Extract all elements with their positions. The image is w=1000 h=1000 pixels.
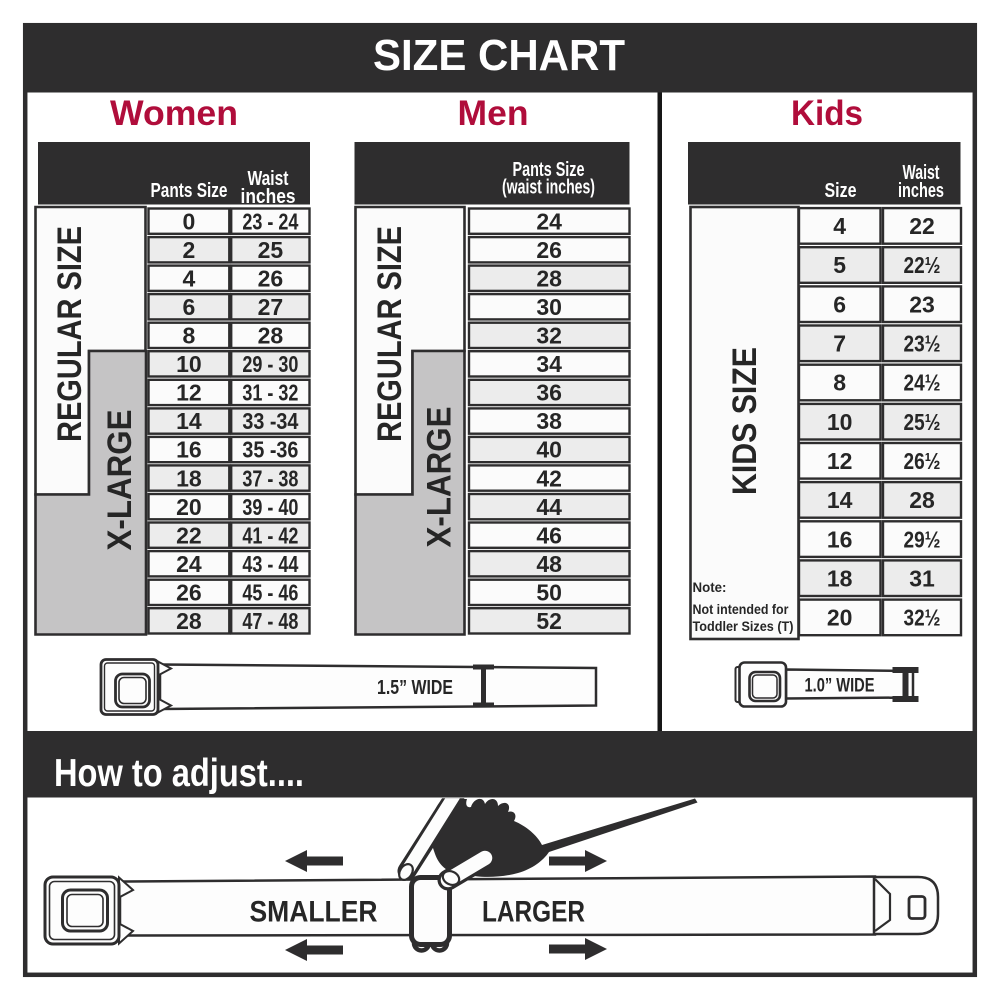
svg-text:SIZE CHART: SIZE CHART xyxy=(373,31,625,80)
svg-text:32½: 32½ xyxy=(904,605,941,631)
svg-text:40: 40 xyxy=(536,437,562,463)
svg-text:SMALLER: SMALLER xyxy=(250,896,378,929)
svg-text:How to adjust....: How to adjust.... xyxy=(54,752,304,795)
svg-text:12: 12 xyxy=(176,380,202,406)
svg-text:X-LARGE: X-LARGE xyxy=(101,410,139,551)
svg-text:36: 36 xyxy=(536,380,562,406)
svg-text:28: 28 xyxy=(258,323,284,349)
svg-text:Men: Men xyxy=(458,94,529,133)
svg-text:1.5” WIDE: 1.5” WIDE xyxy=(377,677,453,699)
svg-text:4: 4 xyxy=(833,213,846,239)
svg-text:28: 28 xyxy=(176,608,202,634)
svg-text:25½: 25½ xyxy=(904,409,941,435)
svg-text:52: 52 xyxy=(536,608,562,634)
svg-text:45 - 46: 45 - 46 xyxy=(242,580,298,606)
svg-text:8: 8 xyxy=(183,323,196,349)
svg-text:48: 48 xyxy=(536,551,562,577)
svg-text:39 - 40: 39 - 40 xyxy=(242,494,298,520)
svg-text:24½: 24½ xyxy=(904,370,941,396)
svg-text:7: 7 xyxy=(833,331,846,357)
svg-text:28: 28 xyxy=(536,265,562,291)
svg-text:REGULAR SIZE: REGULAR SIZE xyxy=(51,226,89,442)
svg-text:38: 38 xyxy=(536,408,562,434)
svg-text:22: 22 xyxy=(176,522,202,548)
svg-text:Toddler Sizes (T): Toddler Sizes (T) xyxy=(693,618,794,634)
svg-text:23½: 23½ xyxy=(904,331,941,357)
svg-text:24: 24 xyxy=(176,551,202,577)
svg-text:28: 28 xyxy=(909,487,935,513)
svg-text:12: 12 xyxy=(827,448,853,474)
svg-text:42: 42 xyxy=(536,465,562,491)
svg-text:20: 20 xyxy=(176,494,202,520)
svg-text:30: 30 xyxy=(536,294,562,320)
svg-text:25: 25 xyxy=(258,237,284,263)
svg-text:16: 16 xyxy=(827,526,853,552)
svg-text:33 -34: 33 -34 xyxy=(242,408,298,434)
svg-text:Note:: Note: xyxy=(693,579,727,595)
svg-text:26½: 26½ xyxy=(904,448,941,474)
svg-text:6: 6 xyxy=(183,294,196,320)
svg-text:43 - 44: 43 - 44 xyxy=(242,551,298,577)
svg-text:20: 20 xyxy=(827,605,853,631)
svg-text:16: 16 xyxy=(176,437,202,463)
svg-text:2: 2 xyxy=(183,237,196,263)
svg-text:27: 27 xyxy=(258,294,284,320)
svg-text:Pants Size: Pants Size xyxy=(151,180,228,202)
svg-text:4: 4 xyxy=(183,265,196,291)
svg-text:REGULAR SIZE: REGULAR SIZE xyxy=(371,226,409,442)
svg-text:LARGER: LARGER xyxy=(482,896,585,929)
svg-text:14: 14 xyxy=(827,487,853,513)
svg-text:18: 18 xyxy=(827,565,853,591)
svg-text:X-LARGE: X-LARGE xyxy=(421,407,459,548)
svg-text:inches: inches xyxy=(241,186,296,208)
svg-text:26: 26 xyxy=(176,580,202,606)
svg-text:31 - 32: 31 - 32 xyxy=(242,380,298,406)
svg-text:31: 31 xyxy=(909,565,935,591)
svg-text:Size: Size xyxy=(825,180,857,202)
svg-text:Not intended for: Not intended for xyxy=(693,601,789,617)
svg-text:23 - 24: 23 - 24 xyxy=(242,208,298,234)
svg-text:23: 23 xyxy=(909,291,935,317)
svg-text:32: 32 xyxy=(536,323,562,349)
svg-text:14: 14 xyxy=(176,408,202,434)
svg-text:1.0” WIDE: 1.0” WIDE xyxy=(805,676,875,697)
svg-text:22½: 22½ xyxy=(904,252,941,278)
svg-text:Women: Women xyxy=(110,94,238,133)
svg-text:22: 22 xyxy=(909,213,935,239)
svg-text:35 -36: 35 -36 xyxy=(242,437,298,463)
svg-text:KIDS SIZE: KIDS SIZE xyxy=(726,347,764,495)
svg-text:(waist inches): (waist inches) xyxy=(502,177,595,199)
svg-text:44: 44 xyxy=(536,494,562,520)
svg-text:29 - 30: 29 - 30 xyxy=(242,351,298,377)
svg-text:47 - 48: 47 - 48 xyxy=(242,608,298,634)
svg-text:10: 10 xyxy=(176,351,202,377)
svg-text:Kids: Kids xyxy=(791,94,863,133)
svg-text:26: 26 xyxy=(258,265,284,291)
svg-text:46: 46 xyxy=(536,522,562,548)
svg-text:34: 34 xyxy=(536,351,562,377)
svg-text:24: 24 xyxy=(536,208,562,234)
svg-text:0: 0 xyxy=(183,208,196,234)
svg-text:41 - 42: 41 - 42 xyxy=(242,522,298,548)
svg-text:37 - 38: 37 - 38 xyxy=(242,465,298,491)
svg-text:29½: 29½ xyxy=(904,526,941,552)
svg-text:inches: inches xyxy=(898,180,944,202)
svg-text:10: 10 xyxy=(827,409,853,435)
svg-text:8: 8 xyxy=(833,370,846,396)
svg-text:6: 6 xyxy=(833,291,846,317)
svg-text:18: 18 xyxy=(176,465,202,491)
svg-text:5: 5 xyxy=(833,252,846,278)
svg-text:26: 26 xyxy=(536,237,562,263)
svg-text:50: 50 xyxy=(536,580,562,606)
